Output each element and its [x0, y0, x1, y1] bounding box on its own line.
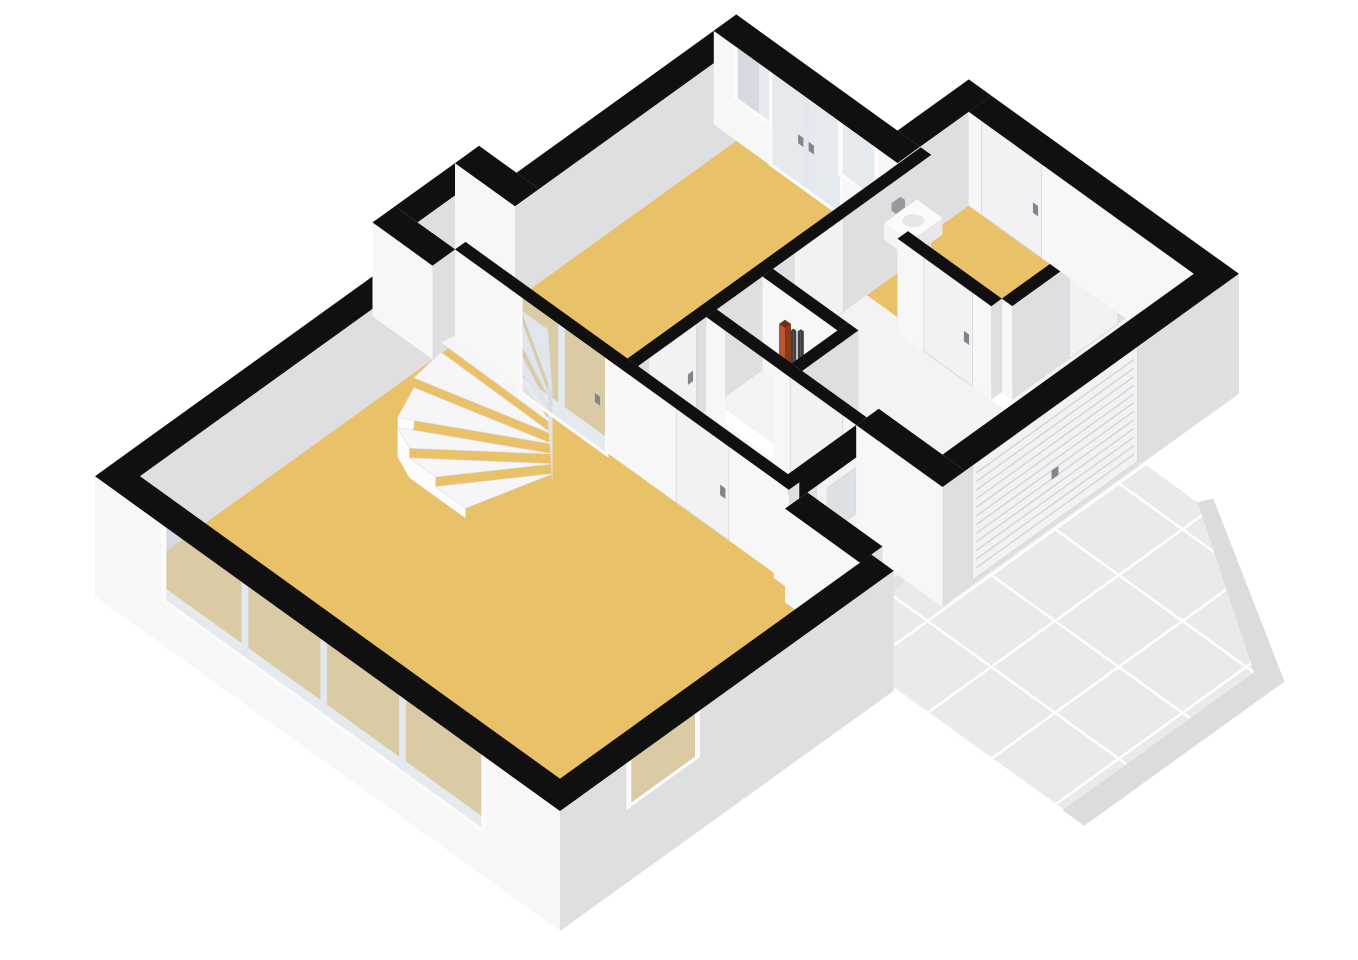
floorplan-svg [0, 0, 1358, 960]
floorplan-3d-render [0, 0, 1358, 960]
sink-basin [902, 214, 924, 227]
floorplan-viewport: 3D floor plan render — ground floor (liv… [0, 0, 1358, 960]
